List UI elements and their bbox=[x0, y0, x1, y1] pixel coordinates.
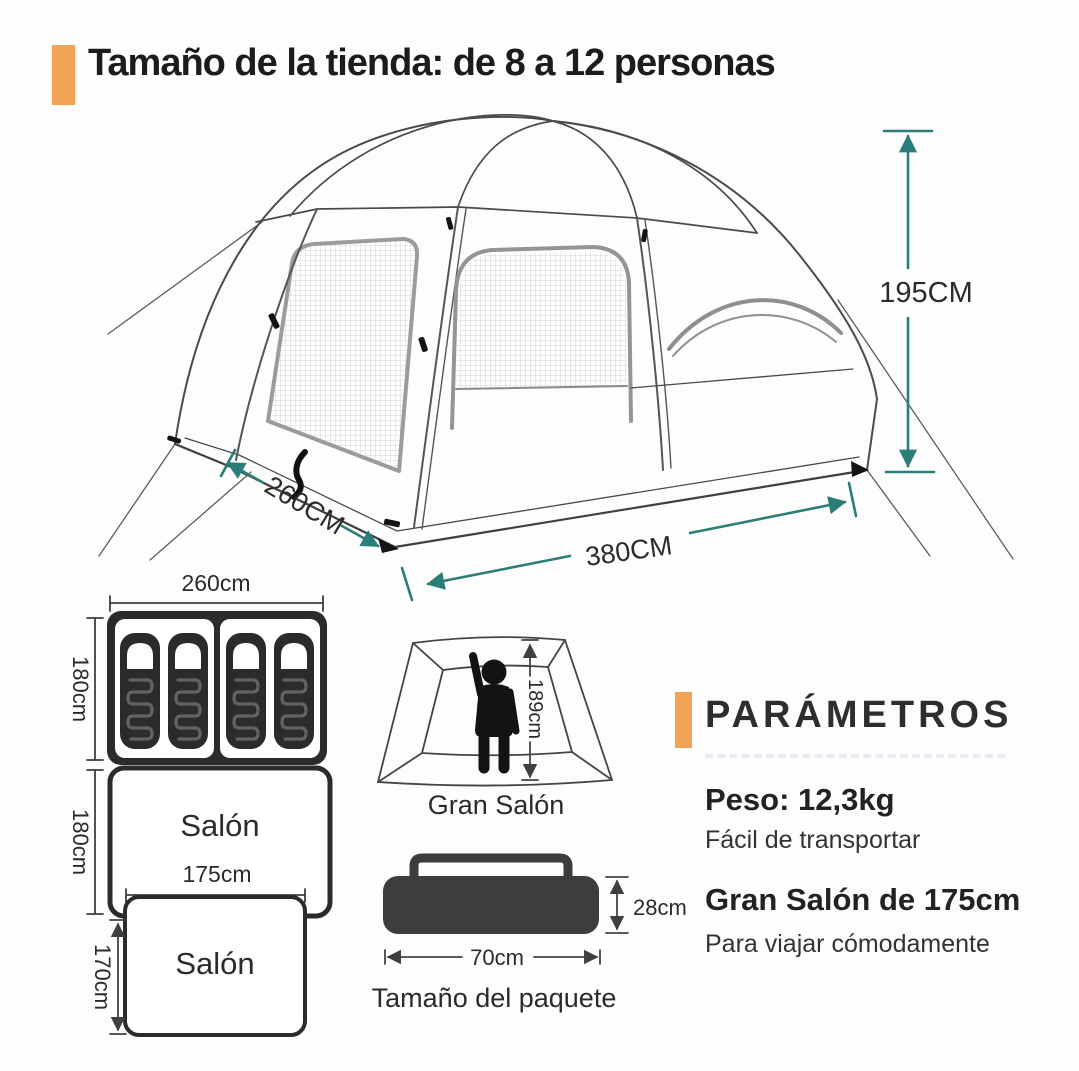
sleeping-bag bbox=[120, 633, 160, 749]
floorplan-salon-width-label: 175cm bbox=[182, 861, 251, 887]
tent-side-window bbox=[669, 300, 841, 356]
parameters-panel: PARÁMETROS Peso: 12,3kg Fácil de transpo… bbox=[675, 690, 1079, 990]
floorplan-dim-bedroom-depth: 180cm bbox=[68, 618, 103, 760]
floorplan-salon-depth-label: 180cm bbox=[68, 809, 93, 875]
weight-subtitle: Fácil de transportar bbox=[705, 826, 920, 855]
floorplan-bedroom-depth-label: 180cm bbox=[68, 656, 93, 722]
tent-eave-line bbox=[256, 207, 757, 233]
sleeping-bag bbox=[274, 633, 314, 749]
gran-salon-diagram: 189cm Gran Salón bbox=[378, 637, 612, 820]
package-dim-width: 70cm bbox=[385, 945, 600, 970]
tent-height-label: 195CM bbox=[879, 277, 973, 309]
tent-center-window bbox=[452, 247, 631, 428]
package-width-label: 70cm bbox=[470, 945, 524, 970]
tent-illustration: 195CM 260CM 380CM bbox=[99, 115, 1013, 600]
floorplan-salon-front-label: Salón bbox=[175, 946, 254, 981]
floorplan-salon-label: Salón bbox=[180, 808, 259, 843]
floorplan-dim-salon-front-depth: 170cm bbox=[90, 920, 126, 1034]
gran-salon-height-label: 189cm bbox=[524, 679, 546, 739]
salon-subtitle: Para viajar cómodamente bbox=[705, 930, 990, 959]
package-diagram: 28cm 70cm Tamaño del paquete bbox=[372, 858, 687, 1013]
tent-right-pole-2 bbox=[645, 220, 671, 468]
tent-depth-label: 260CM bbox=[260, 470, 350, 541]
package-bag bbox=[383, 858, 599, 934]
sleeping-bag bbox=[226, 633, 266, 749]
sleeping-bag bbox=[168, 633, 208, 749]
weight-title: Peso: 12,3kg bbox=[705, 782, 895, 818]
floorplan-dim-salon-depth: 180cm bbox=[68, 770, 103, 914]
parameters-underline bbox=[705, 754, 1005, 758]
tent-roof-arc-left bbox=[290, 115, 637, 218]
floorplan-dim-width: 260cm bbox=[110, 570, 323, 611]
parameters-heading: PARÁMETROS bbox=[705, 694, 1012, 737]
floorplan-width-label: 260cm bbox=[181, 570, 250, 596]
salon-title: Gran Salón de 175cm bbox=[705, 882, 1020, 918]
tent-dimension-height: 195CM bbox=[879, 131, 973, 472]
tent-center-pole bbox=[414, 207, 458, 527]
floorplan-salon-front-depth-label: 170cm bbox=[90, 944, 115, 1010]
parameters-accent-bar bbox=[675, 692, 692, 748]
gran-salon-caption: Gran Salón bbox=[428, 790, 565, 820]
floor-plan: 260cm 180cm Salón 175cm bbox=[68, 570, 330, 1035]
package-caption: Tamaño del paquete bbox=[372, 983, 617, 1013]
tent-width-label: 380CM bbox=[584, 530, 674, 572]
floorplan-bedroom bbox=[107, 611, 327, 765]
person-silhouette bbox=[473, 656, 516, 768]
floorplan-salon-front: Salón bbox=[125, 897, 305, 1035]
floorplan-salon: Salón 175cm bbox=[110, 768, 330, 916]
tent-dimension-width: 380CM bbox=[402, 483, 856, 600]
gran-salon-dim-height: 189cm bbox=[522, 640, 546, 780]
tent-infographic: { "header": { "title": "Tamaño de la tie… bbox=[0, 0, 1079, 1071]
